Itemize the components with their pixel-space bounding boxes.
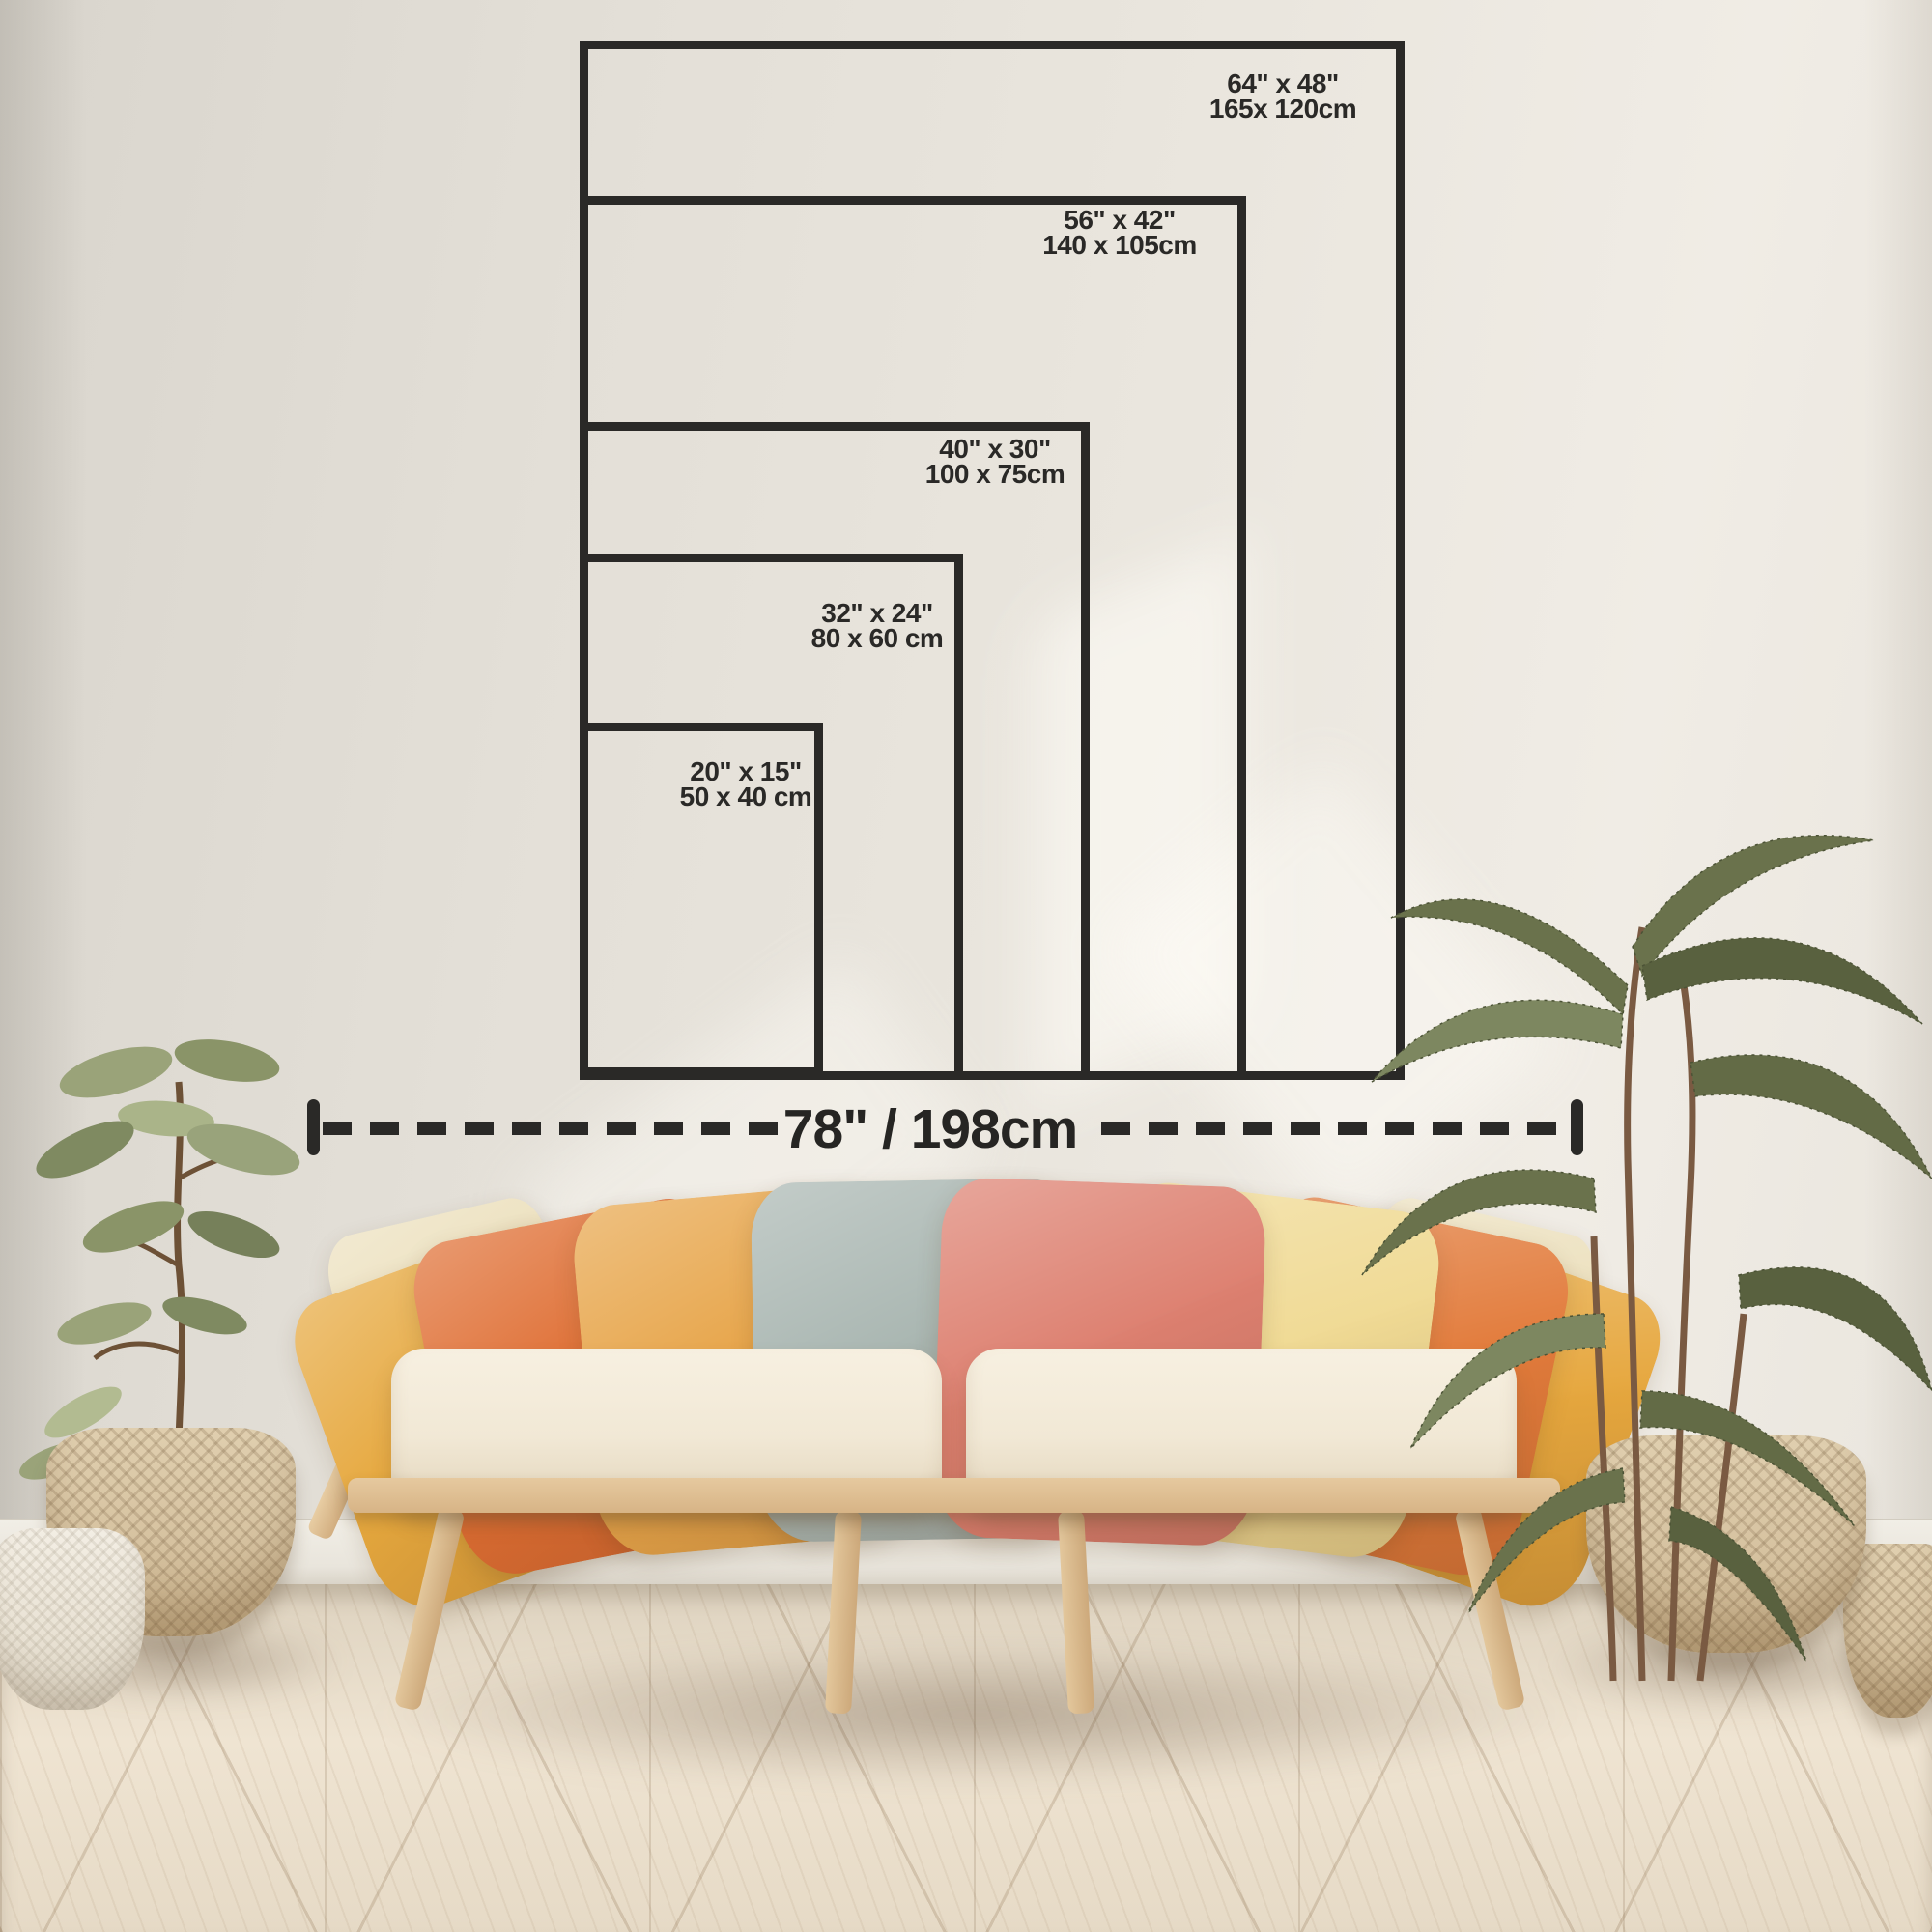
palm-plant [1352,773,1932,1739]
size-cm: 80 x 60 cm [811,626,944,651]
room-scene: 64" x 48" 165x 120cm 56" x 42" 140 x 105… [0,0,1932,1932]
size-label-56x42: 56" x 42" 140 x 105cm [1042,208,1197,258]
size-cm: 50 x 40 cm [680,784,812,810]
size-cm: 140 x 105cm [1042,233,1197,258]
measure-width-label: 78" / 198cm [783,1097,1077,1161]
size-label-32x24: 32" x 24" 80 x 60 cm [811,601,944,651]
size-cm: 165x 120cm [1209,97,1356,122]
size-label-64x48: 64" x 48" 165x 120cm [1209,71,1356,122]
size-label-40x30: 40" x 30" 100 x 75cm [925,437,1065,487]
size-label-20x15: 20" x 15" 50 x 40 cm [680,759,812,810]
size-cm: 100 x 75cm [925,462,1065,487]
measure-dashes-left [323,1122,794,1135]
white-knit-pot [0,1528,145,1710]
